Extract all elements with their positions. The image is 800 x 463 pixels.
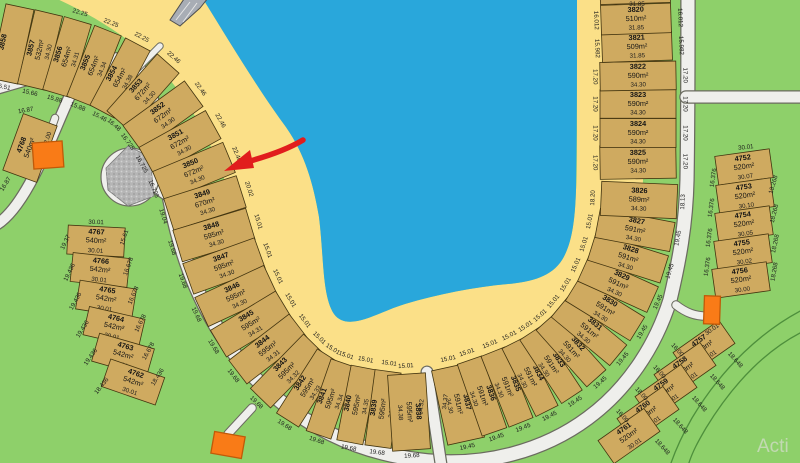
dimension-label: 15.01 <box>398 362 414 370</box>
lot-3825-labels: 3825590m²34.30 <box>627 148 649 175</box>
dimension-label: 17.20 <box>592 96 599 112</box>
svg-text:30.01: 30.01 <box>88 247 104 255</box>
dimension-label: 16.012 <box>676 8 684 28</box>
dimension-label: 16.012 <box>592 11 600 31</box>
dimension-label: 15.982 <box>593 39 601 59</box>
dimension-label: 18.20 <box>589 189 597 205</box>
svg-text:3822: 3822 <box>630 62 646 71</box>
svg-text:509m²: 509m² <box>626 41 648 51</box>
svg-text:3825: 3825 <box>630 148 646 157</box>
dimension-label: 31.85 <box>629 1 645 8</box>
svg-text:34.30: 34.30 <box>631 205 647 213</box>
dimension-label: 17.20 <box>682 125 689 141</box>
svg-text:34.38: 34.38 <box>396 405 404 421</box>
dimension-label: 17.20 <box>682 96 689 112</box>
lot-4766: 4766542m²30.01 <box>70 253 130 288</box>
svg-text:510m²: 510m² <box>625 13 647 23</box>
svg-text:590m²: 590m² <box>628 71 649 80</box>
svg-text:34.30: 34.30 <box>630 139 646 146</box>
dimension-label: 34.32 <box>417 398 425 415</box>
dimension-label: 15.982 <box>677 36 685 56</box>
dimension-label: 17.20 <box>681 67 688 83</box>
svg-text:595m²: 595m² <box>405 401 415 423</box>
lot-3822-labels: 3822590m²34.30 <box>627 62 649 89</box>
dimension-label: 18.13 <box>679 193 687 209</box>
building-west <box>32 141 64 169</box>
subdivision-map: 38583857532m²34.303856654m²34.313855654m… <box>0 0 800 463</box>
lot-3824-labels: 3824590m²34.30 <box>628 119 649 146</box>
svg-text:3823: 3823 <box>630 90 646 99</box>
lot-3823-labels: 3823590m²34.30 <box>628 90 649 117</box>
dimension-label: 30.01 <box>88 219 104 227</box>
watermark-text: Acti <box>757 436 789 457</box>
building-south <box>211 431 245 458</box>
svg-text:590m²: 590m² <box>628 99 649 108</box>
svg-text:31.85: 31.85 <box>629 52 645 60</box>
lot-4767: 4767540m²30.01 <box>67 225 125 257</box>
svg-text:31.85: 31.85 <box>628 24 644 32</box>
svg-text:34.30: 34.30 <box>630 167 646 174</box>
svg-text:540m²: 540m² <box>85 235 107 245</box>
map-viewport: 38583857532m²34.303856654m²34.313855654m… <box>0 0 800 463</box>
dimension-label: 17.20 <box>591 69 598 85</box>
svg-text:589m²: 589m² <box>629 194 651 204</box>
svg-text:590m²: 590m² <box>628 128 649 137</box>
svg-text:34.30: 34.30 <box>630 110 646 117</box>
svg-text:34.30: 34.30 <box>630 81 646 88</box>
svg-text:3824: 3824 <box>630 119 647 128</box>
dimension-label: 17.20 <box>592 125 599 141</box>
svg-text:590m²: 590m² <box>628 157 649 166</box>
dimension-label: 19.68 <box>404 452 420 460</box>
dimension-label: 17.20 <box>681 153 688 169</box>
building-east <box>704 296 721 325</box>
dimension-label: 17.20 <box>591 155 598 171</box>
